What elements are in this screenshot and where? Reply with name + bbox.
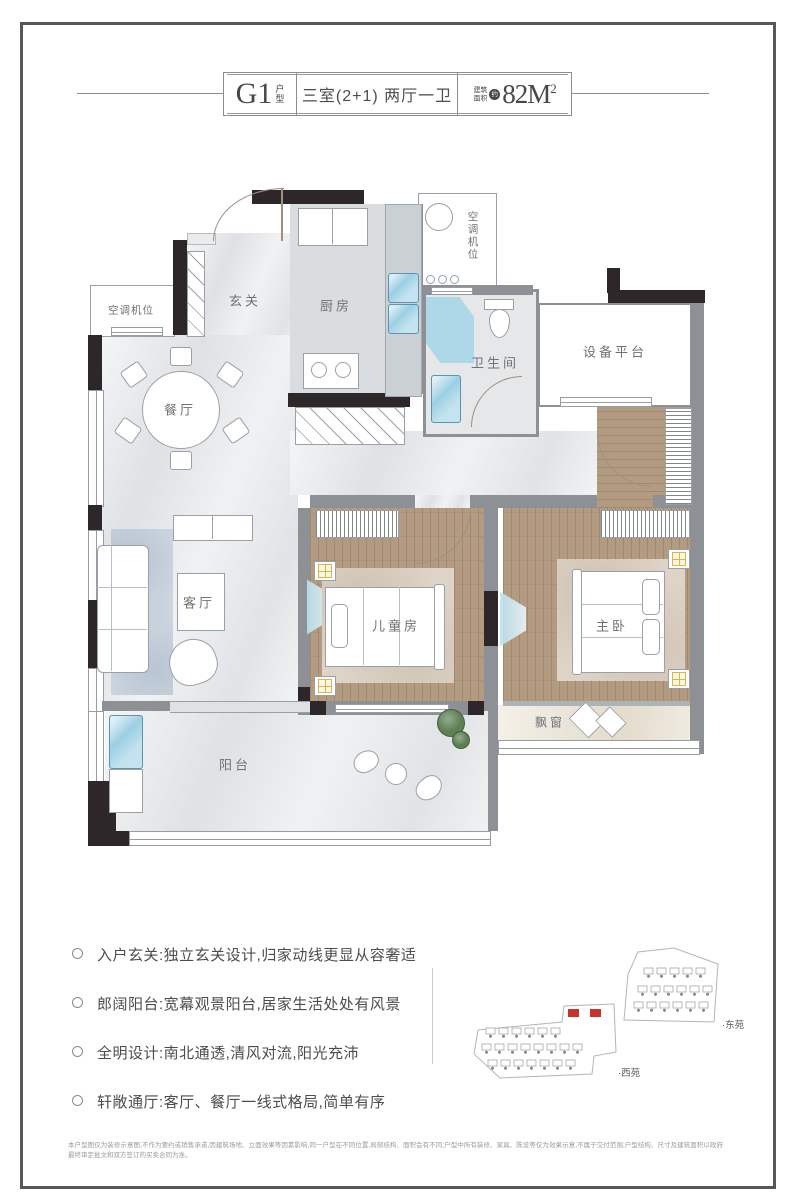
bay-window-glass [498,740,700,755]
highlighted-building [568,1009,579,1017]
wall [310,701,326,715]
lamp-icon [318,564,332,578]
header-rule-left [77,93,223,94]
master-headboard [572,569,582,675]
feature-item: 入户玄关:独立玄关设计,归家动线更显从容奢适 [72,944,416,965]
bed-seam [363,587,364,665]
wall [470,495,597,508]
bullet-circle-icon [72,997,83,1008]
wall [310,495,415,508]
disclaimer-text: 本户型图仅为装修示意图,不作为要约或销售承诺,因建筑场地、立面效果等因素影响,同… [68,1141,723,1160]
master-pillow [642,579,660,615]
room-label-ac-top: 空调机位 [466,211,481,261]
wall [88,335,102,390]
room-label-bath: 卫生间 [471,353,519,372]
sofa-back-line [111,545,112,671]
unit-header: G1 户型 三室(2+1) 两厅一卫 建筑面积 约 82M2 [223,72,572,116]
room-label-bay: 飘窗 [535,714,565,731]
burner-icon [335,362,351,378]
west-label: ·西苑 [618,1067,641,1079]
room-label-equipment: 设备平台 [583,342,647,361]
feature-list: 入户玄关:独立玄关设计,归家动线更显从容奢适 郎阔阳台:宽幕观景阳台,居家生活处… [72,944,416,1140]
approx-badge: 约 [489,89,500,100]
ac-vent-dot [450,275,459,284]
burner-icon [311,362,327,378]
wall [113,831,129,846]
sofa-seam [97,587,147,588]
feature-text: 入户玄关:独立玄关设计,归家动线更显从容奢适 [97,944,416,965]
layout-desc: 三室(2+1) 两厅一卫 [302,82,452,106]
wall [88,505,102,530]
floorplan-page: G1 户型 三室(2+1) 两厅一卫 建筑面积 约 82M2 [0,0,786,1200]
ac-vent-dot [438,275,447,284]
room-label-master: 主卧 [596,616,628,635]
feature-text: 全明设计:南北通透,清风对流,阳光充沛 [97,1042,359,1063]
tv-bench [173,515,253,541]
feature-item: 郎阔阳台:宽幕观景阳台,居家生活处处有风景 [72,993,416,1014]
unit-code: G1 [236,77,273,111]
feature-text: 郎阔阳台:宽幕观景阳台,居家生活处处有风景 [97,993,401,1014]
wall [484,591,498,646]
wall [468,701,484,715]
bath-window [431,287,473,295]
kids-door-threshold [415,495,470,508]
kitchen-cabinet [298,208,368,246]
bench-divider [212,515,213,539]
feature-item: 全明设计:南北通透,清风对流,阳光充沛 [72,1042,416,1063]
wall [173,240,187,335]
kitchen-sink [388,304,419,334]
east-label: ·东苑 [722,1019,745,1031]
bullet-circle-icon [72,1095,83,1106]
corridor-closet [665,408,692,505]
dining-chair [170,347,192,366]
layout-desc-cell: 三室(2+1) 两厅一卫 [297,73,458,115]
cabinet-divider [332,208,333,244]
dining-chair [170,451,192,470]
plant-icon [452,731,470,749]
area-label: 建筑面积 [474,86,488,103]
wall [488,711,498,831]
ac-fan-icon [425,203,453,231]
floorplan-drawing: 空调机位 玄关 厨房 空调机位 卫生间 设备平台 餐厅 客厅 儿童房 主卧 飘窗… [85,163,725,857]
balcony-window [129,831,491,846]
window [88,390,104,507]
area-value: 82M2 [502,79,556,110]
kids-wardrobe [315,510,399,538]
equipment-window [560,397,652,407]
highlighted-building [590,1009,601,1017]
header-rule-right [570,93,709,94]
balcony-cabinet [109,769,143,813]
ac-vent-dot [426,275,435,284]
lamp-icon [318,679,332,693]
balcony-left-window [88,711,104,783]
ac-left-window [111,327,163,336]
kids-headboard [434,584,445,670]
room-label-dining: 餐厅 [164,400,196,419]
room-label-ac-left: 空调机位 [108,303,154,318]
sofa-seam [97,629,147,630]
wall [608,290,705,303]
unit-code-cell: G1 户型 [224,73,297,115]
balcony-sink [109,715,143,769]
feature-item: 轩敞通厅:客厅、餐厅一线式格局,简单有序 [72,1091,416,1112]
bath-sink [431,375,461,423]
wall [690,303,704,754]
lamp-icon [672,552,686,566]
kids-pillow [331,604,348,648]
kids-room-window [335,704,449,713]
kitchen-sink [388,273,419,303]
lamp-icon [672,672,686,686]
room-label-entry: 玄关 [229,291,261,310]
features-divider [432,968,433,1064]
feature-text: 轩敞通厅:客厅、餐厅一线式格局,简单有序 [97,1091,385,1112]
master-pillow [642,619,660,655]
room-label-balcony: 阳台 [219,755,251,774]
entry-door-leaf [281,188,283,241]
shower-icon [426,297,474,363]
room-label-kitchen: 厨房 [320,296,352,315]
unit-type-label: 户型 [275,84,284,105]
bullet-circle-icon [72,948,83,959]
room-label-kids: 儿童房 [372,616,420,635]
hall-cabinet [295,407,405,445]
bullet-circle-icon [72,1046,83,1057]
site-plan: ·东苑 ·西苑 [462,924,762,1116]
sofa [97,545,149,673]
entry-sill [187,233,216,245]
area-cell: 建筑面积 约 82M2 [458,73,571,115]
bay-sill [503,701,690,706]
room-label-living: 客厅 [183,593,215,612]
entry-door-arc [213,188,284,241]
master-wardrobe [600,510,690,538]
balcony-table [385,763,407,785]
foyer-cabinet [187,251,205,337]
